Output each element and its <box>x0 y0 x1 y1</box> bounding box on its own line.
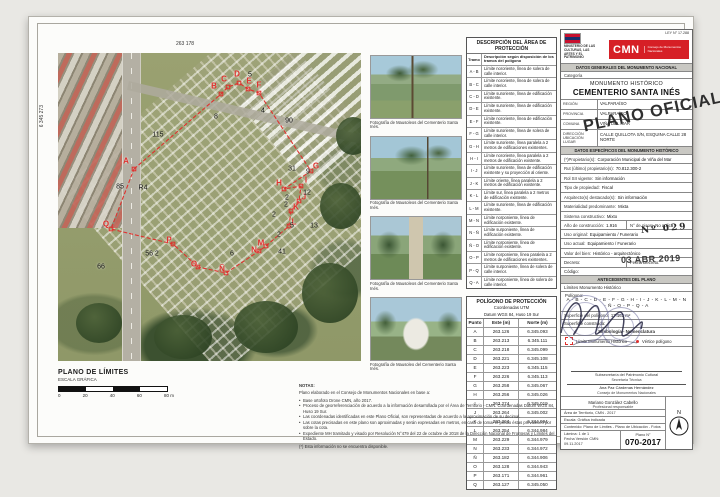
area-table-row: C - D Límite suroriente, línea de edific… <box>467 91 556 103</box>
punto-cell: E <box>467 364 484 372</box>
area-table-row: M - N Límite norponiente, línea de edifi… <box>467 215 556 227</box>
spec-label: Tipo de propiedad: <box>564 185 600 190</box>
tramo-cell: F - G <box>467 128 482 139</box>
norte-cell: 6.345.050 <box>519 481 556 489</box>
cemetery-photo-1 <box>370 55 462 119</box>
date-stamp: 03 ABR 2019 <box>621 253 681 265</box>
dimension-label: 8 <box>214 114 218 121</box>
area-table-row: N - Ñ Límite surponiente, línea de edifi… <box>467 227 556 239</box>
firma2-caption: Ana Paz Cárdenas Hernández Consejo de Mo… <box>567 384 686 395</box>
section-bar-generales: DATOS GENERALES DEL MONUMENTO NACIONAL <box>561 64 692 72</box>
polygon-vertex-label: D <box>234 70 240 79</box>
descripcion-cell: Límite norponiente, línea de solera de c… <box>482 277 556 288</box>
photo-column: Fotografía de Mausoleos del Cementerio S… <box>370 55 462 378</box>
map-annotations: ABCDEFGHIJKLMNÑOPQ1158549031912222513241… <box>58 53 361 361</box>
punto-cell: P <box>467 472 484 480</box>
col-este: Este (m) <box>484 319 519 327</box>
svg-text:N: N <box>677 410 681 416</box>
polygon-table-row: A 263.126 6.345.093 <box>467 328 556 337</box>
punto-cell: C <box>467 346 484 354</box>
descripcion-cell: Límite norponiente, línea de edificación… <box>482 215 556 226</box>
plano-n-value: 070-2017 <box>621 437 665 447</box>
dimension-label: 2 <box>277 232 281 239</box>
tramo-cell: C - D <box>467 91 482 102</box>
plan-sheet: 263 178 6 345 273 ABCDEFGHIJKLMNÑOPQ1158… <box>28 16 694 444</box>
polygon-vertex-label: O <box>191 260 197 269</box>
polygon-vertex-label: A <box>123 157 129 166</box>
anio-cell: Año de construcción: 1.916 <box>561 221 626 229</box>
este-cell: 263.226 <box>484 373 519 381</box>
escala-line: Escala: Gráfica indicada <box>561 417 665 424</box>
norte-cell: 6.345.093 <box>519 328 556 336</box>
scanned-plan-document: { "colors": { "cmn_red": "#d61f26", "pol… <box>0 0 720 462</box>
spec-label: Materialidad predominante: <box>564 204 616 209</box>
tramo-cell: M - N <box>467 215 482 226</box>
punto-cell: F <box>467 373 484 381</box>
north-arrow-cell: N <box>665 397 692 449</box>
tramo-cell: N - Ñ <box>467 227 482 238</box>
este-cell: 263.171 <box>484 472 519 480</box>
plano-number-cell: Plano N° 070-2017 <box>620 431 665 449</box>
tramo-cell: A - B <box>467 66 482 77</box>
dimension-label: 2 <box>272 212 276 219</box>
title-block-header: LEY N° 17.288 MINISTERIO DE LAS CULTURAS… <box>561 30 692 64</box>
descripcion-cell: Límite suroriente, línea de edificación … <box>482 165 556 176</box>
dimension-label: 9 <box>306 169 310 176</box>
polygon-table-row: E 263.223 6.345.115 <box>467 364 556 373</box>
spec-value: Sin información <box>595 176 625 181</box>
scale-tick-labels: 020406080 m <box>58 393 174 398</box>
protection-area-table: DESCRIPCIÓN DEL ÁREA DE PROTECCIÓN Tramo… <box>466 37 557 289</box>
punto-cell: D <box>467 355 484 363</box>
area-table-title: DESCRIPCIÓN DEL ÁREA DE PROTECCIÓN <box>467 38 556 54</box>
este-cell: 263.213 <box>484 337 519 345</box>
polygon-vertex-label: N <box>251 246 257 255</box>
tramo-cell: O - P <box>467 252 482 263</box>
law-number: LEY N° 17.288 <box>665 31 689 35</box>
firma1-sub: Secretaría Técnica <box>571 378 682 382</box>
spec-label: Uso actual: <box>564 241 586 246</box>
spec-value: Corporación Municipal de Viña del Mar <box>598 157 672 162</box>
spec-value: Mixto <box>607 214 617 219</box>
photo-card: Fotografía de Mausoleos del Cementerio S… <box>370 55 462 130</box>
lamina-fecha-cell: Lámina: 1 de 1 Fecha Versión CMN: 09.11.… <box>561 431 620 449</box>
tramo-cell: P - Q <box>467 264 482 275</box>
norte-cell: 6.345.115 <box>519 364 556 372</box>
photo-card: Fotografía de Mausoleo del Cementerio Sa… <box>370 297 462 372</box>
notes-bullets: Base ortofoto Drone CMN, año 2017.Proces… <box>299 398 561 442</box>
anio-label: Año de construcción: <box>564 223 604 228</box>
scale-tick: 60 <box>137 393 142 398</box>
dimension-label: 12 <box>303 190 311 197</box>
chile-government-logo-icon <box>564 33 581 44</box>
photo-card: Fotografía de Mausoleos del Cementerio S… <box>370 216 462 291</box>
plan-title: PLANO DE LÍMITES <box>58 369 188 376</box>
area-table-row: Ñ - O Límite norponiente, línea de edifi… <box>467 240 556 252</box>
tramo-cell: L - M <box>467 202 482 213</box>
descripcion-cell: Límite norponiente, línea de edificación… <box>482 240 556 251</box>
area-table-row: A - B Límite nororiente, línea de solera… <box>467 66 556 78</box>
scale-tick: 40 <box>110 393 115 398</box>
descripcion-cell: Límite suroriente, línea de edificación … <box>482 202 556 213</box>
spec-label: (*)Propietario(s): <box>564 157 596 162</box>
spec-row: Uso actual: Equipamiento / Funerario <box>561 239 692 249</box>
dimension-label: 90 <box>285 118 293 125</box>
dimension-label: 6 <box>230 251 234 258</box>
dimension-label: 66 <box>97 264 105 271</box>
spec-row: Rol SII vigente: Sin información <box>561 174 692 184</box>
dimension-label: 115 <box>152 132 163 139</box>
tramo-cell: E - F <box>467 116 482 127</box>
polygon-vertex-label: Q <box>103 220 109 229</box>
area-table-row: L - M Límite suroriente, línea de edific… <box>467 202 556 214</box>
fecha-version-line: Fecha Versión CMN: 09.11.2017 <box>564 437 617 447</box>
norte-cell: 6.345.099 <box>519 346 556 354</box>
professional-main: Mariano González Cabello Profesional res… <box>561 397 665 449</box>
dimension-label: R4 <box>139 185 148 192</box>
este-cell: 263.221 <box>484 355 519 363</box>
polygon-table-row: Ñ 263.182 6.344.906 <box>467 454 556 463</box>
cemetery-photo-3 <box>370 216 462 280</box>
polygon-table-row: P 263.171 6.344.961 <box>467 472 556 481</box>
polygon-table-row: Q 263.127 6.345.050 <box>467 481 556 489</box>
area-table-row: G - H Límite suroriente, línea paralela … <box>467 140 556 152</box>
notes-block: NOTAS: Plano elaborado en el Consejo de … <box>299 383 561 449</box>
este-cell: 263.182 <box>484 454 519 462</box>
col-punto: Punto <box>467 319 484 327</box>
codigo-row: Código: <box>561 268 692 276</box>
dimension-label: 5 <box>248 72 252 79</box>
tramo-cell: J - K <box>467 178 482 189</box>
polygon-table-header: Punto Este (m) Norte (m) <box>467 319 556 328</box>
area-table-row: I - J Límite suroriente, línea de edific… <box>467 165 556 177</box>
norte-cell: 6.344.906 <box>519 454 556 462</box>
tramo-cell: H - I <box>467 153 482 164</box>
descripcion-cell: Límite suroriente, línea paralela a 2 me… <box>482 140 556 151</box>
cmn-full-name: Consejo de Monumentos Nacionales <box>644 46 685 53</box>
col-tramo: Tramo <box>467 54 482 65</box>
tramo-cell: Q - A <box>467 277 482 288</box>
anio-value: 1.916 <box>606 223 617 228</box>
spec-value: Fiscal <box>602 185 613 190</box>
spec-label: Valor del bien: <box>564 251 591 256</box>
area-table-row: B - C Límite nororiente, línea de solera… <box>467 78 556 90</box>
notes-title: NOTAS: <box>299 383 561 388</box>
norte-cell: 6.345.113 <box>519 373 556 381</box>
descripcion-cell: Límite suroriente, línea de edificación … <box>482 91 556 102</box>
descripcion-cell: Límite suroriente, línea de edificación … <box>482 103 556 114</box>
section-bar-especificos: DATOS ESPECÍFICOS DEL MONUMENTO HISTÓRIC… <box>561 147 692 155</box>
monument-category: MONUMENTO HISTÓRICO <box>561 81 692 87</box>
dimension-label: 4 <box>261 108 265 115</box>
tramo-cell: Ñ - O <box>467 240 482 251</box>
note-bullet: Las cotas precisadas en este plano son a… <box>299 420 561 431</box>
dimension-label: 2 <box>284 202 288 209</box>
spec-value: Mixta <box>618 204 628 209</box>
photo-caption: Fotografía de Mausoleos del Cementerio S… <box>370 282 462 291</box>
spec-value: Sin información <box>618 195 648 200</box>
area-table-row: J - K Límite oriente, línea paralela a 2… <box>467 178 556 190</box>
firma1-cargo: Subsecretaría del Patrimonio Cultural <box>571 371 682 377</box>
polygon-table-row: B 263.213 6.345.111 <box>467 337 556 346</box>
spec-value: 70.812.300-2 <box>616 166 641 171</box>
polygon-vertex-label: B <box>211 82 217 91</box>
categoria-label: Categoría <box>561 72 692 79</box>
photo-caption: Fotografía de Mausoleos del Cementerio S… <box>370 121 462 130</box>
handwritten-signatures <box>553 285 663 363</box>
dimension-label: 56 2 <box>145 251 159 258</box>
tramo-cell: G - H <box>467 140 482 151</box>
norte-cell: 6.345.108 <box>519 355 556 363</box>
spec-row: Materialidad predominante: Mixta <box>561 202 692 212</box>
area-table-header: Tramo Descripción según disposición de l… <box>467 54 556 66</box>
cemetery-photo-2 <box>370 136 462 200</box>
scale-tick: 20 <box>83 393 88 398</box>
col-descripcion: Descripción según disposición de los tra… <box>482 54 556 65</box>
polygon-table-row: D 263.221 6.345.108 <box>467 355 556 364</box>
geo-row: DIRECCIÓN UBICACIÓN LUGAR CALLE QUILLOTA… <box>561 130 692 146</box>
spec-label: Rol SII vigente: <box>564 176 593 181</box>
spec-label: Rut (último) propietario(s): <box>564 166 614 171</box>
dimension-label: 13 <box>310 223 318 230</box>
note-bullet: Expediente MH tramitado y visado por Res… <box>299 431 561 442</box>
spec-row: Sistema constructivo: Mixto <box>561 212 692 221</box>
tramo-cell: K - L <box>467 190 482 201</box>
punto-cell: Ñ <box>467 454 484 462</box>
polygon-vertex-label: C <box>221 75 227 84</box>
map-coordinate-top: 263 178 <box>176 41 194 47</box>
dimension-label: 85 <box>116 184 124 191</box>
polygon-vertex-label: I <box>305 176 307 185</box>
scale-tick: 80 m <box>164 393 174 398</box>
notes-final: (*) Esta información no se encuentra dis… <box>299 444 561 449</box>
col-norte: Norte (m) <box>519 319 556 327</box>
spec-row: (*)Propietario(s): Corporación Municipal… <box>561 155 692 165</box>
north-arrow-icon: N <box>668 408 690 438</box>
area-territorio-line: Área de Territorio, CMN - 2017 <box>561 410 665 417</box>
polygon-table-row: C 263.218 6.345.099 <box>467 346 556 355</box>
photo-caption: Fotografía de Mausoleo del Cementerio Sa… <box>370 363 462 372</box>
area-table-row: K - L Límite sur, línea paralela a 2 met… <box>467 190 556 202</box>
decreto-cell: Decreto: <box>561 258 626 267</box>
descripcion-cell: Límite norponiente, línea paralela a 2 m… <box>482 252 556 263</box>
professional-block: Mariano González Cabello Profesional res… <box>561 397 692 449</box>
firma2-cargo: Consejo de Monumentos Nacionales <box>567 391 686 395</box>
prof-name-cell: Mariano González Cabello Profesional res… <box>561 397 665 410</box>
geo-value: CALLE QUILLOTA S/N, ESQUINA CALLE 28 NOR… <box>598 130 692 146</box>
aerial-orthophoto-map: ABCDEFGHIJKLMNÑOPQ1158549031912222513241… <box>58 53 361 361</box>
bottom-row: Lámina: 1 de 1 Fecha Versión CMN: 09.11.… <box>561 431 665 449</box>
area-table-row: Q - A Límite norponiente, línea de soler… <box>467 277 556 288</box>
ministry-name: MINISTERIO DE LAS CULTURAS, LAS ARTES Y … <box>564 45 598 60</box>
punto-cell: A <box>467 328 484 336</box>
monument-name: CEMENTERIO SANTA INÉS <box>561 88 692 97</box>
area-table-row: F - G Límite suroriente, línea de solera… <box>467 128 556 140</box>
area-table-row: D - E Límite suroriente, línea de edific… <box>467 103 556 115</box>
area-table-row: O - P Límite norponiente, línea paralela… <box>467 252 556 264</box>
polygon-vertex-label: P <box>166 236 171 245</box>
spec-row: Arquitecto(s) destacado(s): Sin informac… <box>561 193 692 203</box>
area-table-row: H - I Límite nororiente, línea paralela … <box>467 153 556 165</box>
dimension-label: 2 <box>285 195 289 202</box>
este-cell: 263.218 <box>484 346 519 354</box>
dimension-label: 31 <box>288 166 296 173</box>
monument-name-block: MONUMENTO HISTÓRICO CEMENTERIO SANTA INÉ… <box>561 79 692 100</box>
descripcion-cell: Límite nororiente, línea de solera de ca… <box>482 78 556 89</box>
polygon-table-title: POLÍGONO DE PROTECCIÓN <box>467 297 556 305</box>
spec-rows-1: (*)Propietario(s): Corporación Municipal… <box>561 155 692 222</box>
spec-label: Sistema constructivo: <box>564 214 605 219</box>
polygon-vertex-label: Ñ <box>219 265 225 274</box>
descripcion-cell: Límite sur, línea paralela a 2 metros de… <box>482 190 556 201</box>
spec-label: Uso original: <box>564 232 588 237</box>
spec-value: Equipamiento / Funerario <box>590 232 638 237</box>
polygon-vertex-label: F <box>257 81 262 90</box>
cmn-logo: CMN Consejo de Monumentos Nacionales <box>609 40 689 59</box>
polygon-vertex-label: G <box>313 162 319 171</box>
polygon-vertex-label: M <box>258 239 265 248</box>
area-table-body: A - B Límite nororiente, línea de solera… <box>467 66 556 288</box>
area-table-row: P - Q Límite surponiente, línea de soler… <box>467 264 556 276</box>
map-coordinate-left: 6 345 273 <box>39 105 45 127</box>
polygon-table-row: F 263.226 6.345.113 <box>467 373 556 382</box>
note-bullet: Proceso de georreferenciación de acuerdo… <box>299 403 561 414</box>
plan-subtitle: ESCALA GRÁFICA <box>58 377 188 382</box>
geo-label: REGIÓN <box>561 100 598 109</box>
descripcion-cell: Límite nororiente, línea de solera de ca… <box>482 66 556 77</box>
polygon-table-sub2: Datum WGS 84, Huso 19 Sur <box>467 312 556 319</box>
graphic-scale-bar <box>58 386 168 392</box>
scale-tick: 0 <box>58 393 61 398</box>
tramo-cell: B - C <box>467 78 482 89</box>
norte-cell: 6.344.943 <box>519 463 556 471</box>
este-cell: 263.127 <box>484 481 519 489</box>
dimension-label: 41 <box>278 249 286 256</box>
este-cell: 263.223 <box>484 364 519 372</box>
area-table-row: E - F Límite nororiente, línea de edific… <box>467 116 556 128</box>
punto-cell: B <box>467 337 484 345</box>
norte-cell: 6.345.111 <box>519 337 556 345</box>
este-cell: 263.126 <box>484 328 519 336</box>
punto-cell: Q <box>467 481 484 489</box>
este-cell: 263.128 <box>484 463 519 471</box>
descripcion-cell: Límite surponiente, línea de edificación… <box>482 227 556 238</box>
spec-row: Rut (último) propietario(s): 70.812.300-… <box>561 164 692 174</box>
contenido-line: Contenido: Plano de Límites - Plano de U… <box>561 424 665 431</box>
polygon-table-row: O 263.128 6.344.943 <box>467 463 556 472</box>
section-bar-antecedentes: ANTECEDENTES DEL PLANO <box>561 276 692 284</box>
photo-caption: Fotografía de Mausoleos del Cementerio S… <box>370 201 462 210</box>
descripcion-cell: Límite nororiente, línea de edificación … <box>482 116 556 127</box>
descripcion-cell: Límite surponiente, línea de solera de c… <box>482 264 556 275</box>
spec-row: Tipo de propiedad: Fiscal <box>561 183 692 193</box>
notes-intro: Plano elaborado en el Consejo de Monumen… <box>299 390 561 395</box>
descripcion-cell: Límite suroriente, línea de solera de ca… <box>482 128 556 139</box>
tramo-cell: D - E <box>467 103 482 114</box>
photo-card: Fotografía de Mausoleos del Cementerio S… <box>370 136 462 211</box>
polygon-vertex-label: K <box>293 203 299 212</box>
spec-value: Equipamiento / Funerario <box>588 241 636 246</box>
dimension-label: 5 <box>290 223 294 230</box>
scale-block: PLANO DE LÍMITES ESCALA GRÁFICA 02040608… <box>58 369 188 398</box>
ministry-logo-block: MINISTERIO DE LAS CULTURAS, LAS ARTES Y … <box>564 33 598 60</box>
descripcion-cell: Límite nororiente, línea paralela a 2 me… <box>482 153 556 164</box>
tramo-cell: I - J <box>467 165 482 176</box>
cemetery-photo-4 <box>370 297 462 361</box>
cmn-acronym: CMN <box>613 44 640 56</box>
descripcion-cell: Límite oriente, línea paralela a 2 metro… <box>482 178 556 189</box>
punto-cell: O <box>467 463 484 471</box>
polygon-vertex-label: H <box>276 179 282 188</box>
title-block: LEY N° 17.288 MINISTERIO DE LAS CULTURAS… <box>560 29 693 450</box>
spec-label: Arquitecto(s) destacado(s): <box>564 195 616 200</box>
norte-cell: 6.344.961 <box>519 472 556 480</box>
